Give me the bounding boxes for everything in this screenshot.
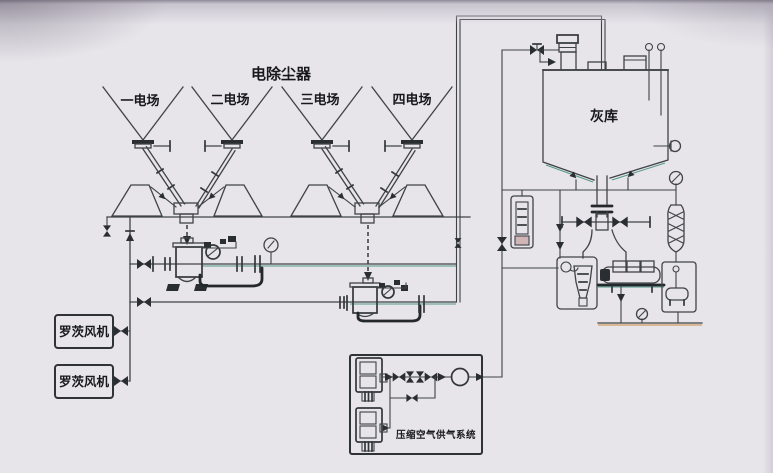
humidifier-mixer — [598, 261, 664, 323]
silo-discharge — [562, 170, 650, 262]
check-valve-icon — [126, 233, 134, 241]
valve-icon — [497, 237, 507, 251]
conveying-pump-2 — [340, 278, 424, 321]
valve-icon — [612, 217, 627, 228]
air-supply-system: 压缩空气供气系统 — [350, 355, 502, 454]
valve-icon — [137, 297, 151, 307]
esp-field-1-label: 一电场 — [120, 93, 159, 109]
esp-field-3-label: 三电场 — [300, 92, 339, 108]
flow-diagram: 电除尘器 一电场 二电场 三电场 — [0, 0, 773, 473]
bag-filter — [557, 35, 578, 70]
conveying-line-1 — [130, 259, 456, 269]
down-arrow-icon — [364, 272, 372, 281]
roots-blower-2: 罗茨风机 — [55, 365, 113, 398]
esp-field-4-label: 四电场 — [392, 92, 431, 108]
valve-icon — [137, 259, 151, 269]
diagram-canvas: 电除尘器 一电场 二电场 三电场 — [0, 0, 773, 473]
air-compressor-1 — [356, 358, 387, 401]
valve-icon — [114, 326, 128, 336]
esp-field-2: 二电场 — [192, 87, 272, 208]
esp-field-3: 三电场 — [282, 87, 364, 206]
flow-arrow-icon — [383, 425, 389, 431]
esp-title: 电除尘器 — [251, 65, 312, 83]
ash-silo: 灰库 — [543, 44, 681, 183]
esp-field-2-label: 二电场 — [210, 92, 249, 108]
silo-label: 灰库 — [590, 108, 618, 125]
drain-valve-icon — [103, 225, 111, 236]
roots-blower-2-label: 罗茨风机 — [59, 374, 110, 389]
roots-blower-1-label: 罗茨风机 — [59, 324, 110, 339]
air-receiver-icon — [452, 369, 469, 386]
esp-field-1: 一电场 — [103, 87, 185, 206]
air-system-label: 压缩空气供气系统 — [396, 429, 476, 441]
flow-arrow-icon — [385, 373, 393, 381]
valve-icon — [114, 376, 128, 386]
discharge-filter-unit — [557, 257, 597, 309]
silo-manhole — [624, 56, 646, 70]
pressure-gauge-1 — [264, 238, 278, 264]
roots-blower-1: 罗茨风机 — [55, 315, 113, 348]
valve-icon — [576, 217, 591, 228]
air-heater — [511, 190, 533, 248]
air-compressor-2 — [356, 408, 387, 451]
filter-motor-icon — [561, 262, 571, 272]
valve-icon — [617, 294, 625, 302]
bypass-valve-icon — [406, 394, 417, 402]
mixer-motor-icon — [600, 269, 610, 281]
bulk-loading-chain — [662, 172, 696, 324]
esp-precipitator: 电除尘器 一电场 二电场 三电场 — [103, 65, 470, 281]
bottom-line — [598, 309, 702, 326]
conveying-line-2 — [130, 297, 456, 307]
valve-icon — [393, 373, 406, 382]
silo-inlet-port — [588, 62, 606, 70]
conveying-pipe-to-silo — [455, 16, 606, 302]
hopper-supports — [112, 185, 443, 216]
flow-arrow-icon — [438, 373, 446, 381]
flow-arrow-icon — [548, 58, 556, 66]
esp-field-4: 四电场 — [372, 87, 452, 208]
check-valve-icon — [556, 242, 564, 250]
bag-filter-icon — [557, 35, 578, 43]
